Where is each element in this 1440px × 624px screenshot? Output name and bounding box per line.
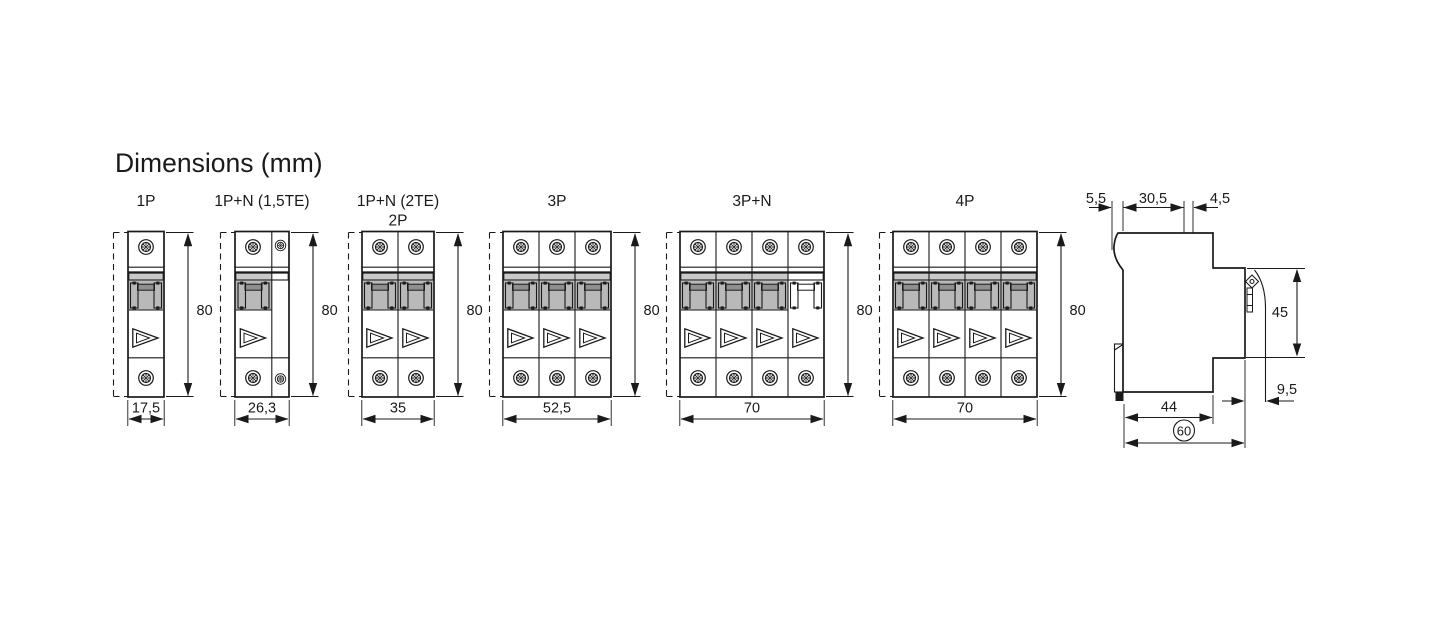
dim-label-total-depth: 60 bbox=[1177, 424, 1191, 439]
breaker-label: 3P+N bbox=[732, 193, 771, 210]
width-dimension: 52,5 bbox=[503, 400, 611, 426]
screw-terminal-icon bbox=[976, 240, 991, 255]
width-dimension: 17,5 bbox=[128, 400, 164, 426]
screw-terminal-icon bbox=[904, 371, 919, 386]
height-dimension: 80 bbox=[166, 233, 213, 397]
breaker-front-3p: 3P 80 52,5 bbox=[490, 193, 660, 426]
breaker-body bbox=[503, 232, 611, 398]
screw-terminal-icon bbox=[550, 371, 565, 386]
height-dim-label: 80 bbox=[857, 303, 873, 319]
brand-triangle-icon bbox=[721, 329, 746, 347]
brand-triangle-icon bbox=[898, 329, 923, 347]
screw-terminal-small-icon bbox=[275, 374, 286, 385]
screw-terminal-icon bbox=[691, 371, 706, 386]
dim-label-rear-to-handle: 30,5 bbox=[1139, 191, 1167, 207]
width-dimension: 26,3 bbox=[235, 400, 289, 426]
breaker-label: 1P bbox=[137, 193, 156, 210]
page-title: Dimensions (mm) bbox=[115, 148, 323, 178]
screw-terminal-icon bbox=[246, 371, 261, 386]
screw-terminal-icon bbox=[373, 240, 388, 255]
breaker-label-line2: 2P bbox=[389, 213, 408, 230]
brand-triangle-icon bbox=[544, 329, 569, 347]
brand-triangle-icon bbox=[240, 329, 265, 347]
terminal-depth-dimension: 9,5 bbox=[1222, 360, 1297, 448]
brand-triangle-icon bbox=[970, 329, 995, 347]
dim-label-front-height: 45 bbox=[1272, 305, 1288, 321]
screw-terminal-icon bbox=[514, 240, 529, 255]
breaker-label: 1P+N (2TE) bbox=[357, 193, 439, 210]
breaker-label: 1P+N (1,5TE) bbox=[214, 193, 309, 210]
brand-triangle-icon bbox=[793, 329, 818, 347]
breaker-front-1pn-15te: 1P+N (1,5TE) 80 26,3 bbox=[214, 193, 337, 426]
toggle-handle-neutral bbox=[791, 282, 822, 310]
front-height-dimension: 45 bbox=[1246, 269, 1305, 358]
screw-terminal-icon bbox=[586, 371, 601, 386]
dim-label-terminal-depth: 9,5 bbox=[1277, 382, 1297, 398]
phantom-outline bbox=[667, 233, 681, 397]
screw-terminal-icon bbox=[373, 371, 388, 386]
breaker-front-2p: 1P+N (2TE) 2P 80 35 bbox=[349, 193, 483, 426]
total-depth-dimension: 60 bbox=[1125, 420, 1245, 447]
width-dim-label: 17,5 bbox=[132, 401, 160, 417]
screw-terminal-icon bbox=[1012, 240, 1027, 255]
screw-terminal-icon bbox=[246, 240, 261, 255]
height-dimension: 80 bbox=[291, 233, 338, 397]
height-dimension: 80 bbox=[436, 233, 483, 397]
screw-terminal-icon bbox=[514, 371, 529, 386]
width-dim-label: 52,5 bbox=[543, 401, 571, 417]
screw-terminal-icon bbox=[586, 240, 601, 255]
screw-terminal-icon bbox=[727, 371, 742, 386]
terminal-clamp-icon bbox=[1246, 275, 1259, 312]
height-dim-label: 80 bbox=[644, 303, 660, 319]
width-dim-label: 26,3 bbox=[248, 401, 276, 417]
width-dim-label: 35 bbox=[390, 401, 406, 417]
screw-terminal-icon bbox=[139, 371, 154, 386]
brand-triangle-icon bbox=[934, 329, 959, 347]
screw-terminal-icon bbox=[940, 371, 955, 386]
breaker-front-1p: 1P 80 17,5 bbox=[114, 193, 213, 426]
brand-triangle-icon bbox=[685, 329, 710, 347]
height-dimension: 80 bbox=[826, 233, 873, 397]
brand-triangle-icon bbox=[508, 329, 533, 347]
screw-terminal-icon bbox=[976, 371, 991, 386]
width-dim-label: 70 bbox=[957, 401, 973, 417]
screw-terminal-icon bbox=[409, 240, 424, 255]
screw-terminal-icon bbox=[139, 240, 154, 255]
dim-label-rear-hook: 5,5 bbox=[1086, 191, 1106, 207]
screw-terminal-icon bbox=[691, 240, 706, 255]
screw-terminal-icon bbox=[727, 240, 742, 255]
screw-terminal-icon bbox=[409, 371, 424, 386]
technical-drawing-canvas: Dimensions (mm) 1P 80 17,5 1P+N (1,5TE) bbox=[0, 0, 1440, 624]
width-dimension: 70 bbox=[680, 400, 824, 426]
breaker-body bbox=[128, 232, 164, 398]
side-profile-outline bbox=[1114, 233, 1245, 392]
brand-triangle-icon bbox=[403, 329, 428, 347]
phantom-outline bbox=[221, 233, 236, 397]
height-dim-label: 80 bbox=[1070, 303, 1086, 319]
breaker-label: 4P bbox=[956, 193, 975, 210]
breaker-label: 3P bbox=[548, 193, 567, 210]
screw-terminal-icon bbox=[799, 371, 814, 386]
phantom-outline bbox=[114, 233, 129, 397]
screw-terminal-icon bbox=[904, 240, 919, 255]
top-dimensions: 5,5 30,5 4,5 bbox=[1086, 191, 1230, 212]
phantom-outline bbox=[490, 233, 504, 397]
brand-triangle-icon bbox=[580, 329, 605, 347]
screw-terminal-icon bbox=[1012, 371, 1027, 386]
screw-terminal-icon bbox=[763, 240, 778, 255]
brand-triangle-icon bbox=[1006, 329, 1031, 347]
breaker-body bbox=[235, 232, 289, 398]
height-dim-label: 80 bbox=[467, 303, 483, 319]
screw-terminal-icon bbox=[799, 240, 814, 255]
breaker-front-3pn: 3P+N 80 bbox=[667, 193, 873, 426]
screw-terminal-icon bbox=[763, 371, 778, 386]
height-dimension: 80 bbox=[613, 233, 660, 397]
brand-triangle-icon bbox=[367, 329, 392, 347]
width-dimension: 70 bbox=[893, 400, 1037, 426]
screw-terminal-icon bbox=[940, 240, 955, 255]
height-dimension: 80 bbox=[1039, 233, 1086, 397]
height-dim-label: 80 bbox=[322, 303, 338, 319]
wire-bend-arc bbox=[1255, 270, 1266, 402]
side-view: 5,5 30,5 4,5 45 9,5 44 60 bbox=[1086, 191, 1305, 448]
dim-label-handle-width: 4,5 bbox=[1210, 191, 1230, 207]
dim-label-base-depth: 44 bbox=[1161, 400, 1177, 416]
screw-terminal-icon bbox=[550, 240, 565, 255]
phantom-outline bbox=[349, 233, 363, 397]
breaker-front-4p: 4P 80 bbox=[880, 193, 1086, 426]
width-dimension: 35 bbox=[362, 400, 434, 426]
phantom-outline bbox=[880, 233, 894, 397]
height-dim-label: 80 bbox=[197, 303, 213, 319]
brand-triangle-icon bbox=[757, 329, 782, 347]
screw-terminal-small-icon bbox=[275, 240, 286, 251]
technical-drawing-page: Dimensions (mm) 1P 80 17,5 1P+N (1,5TE) bbox=[0, 0, 1440, 624]
brand-triangle-icon bbox=[133, 329, 158, 347]
width-dim-label: 70 bbox=[744, 401, 760, 417]
